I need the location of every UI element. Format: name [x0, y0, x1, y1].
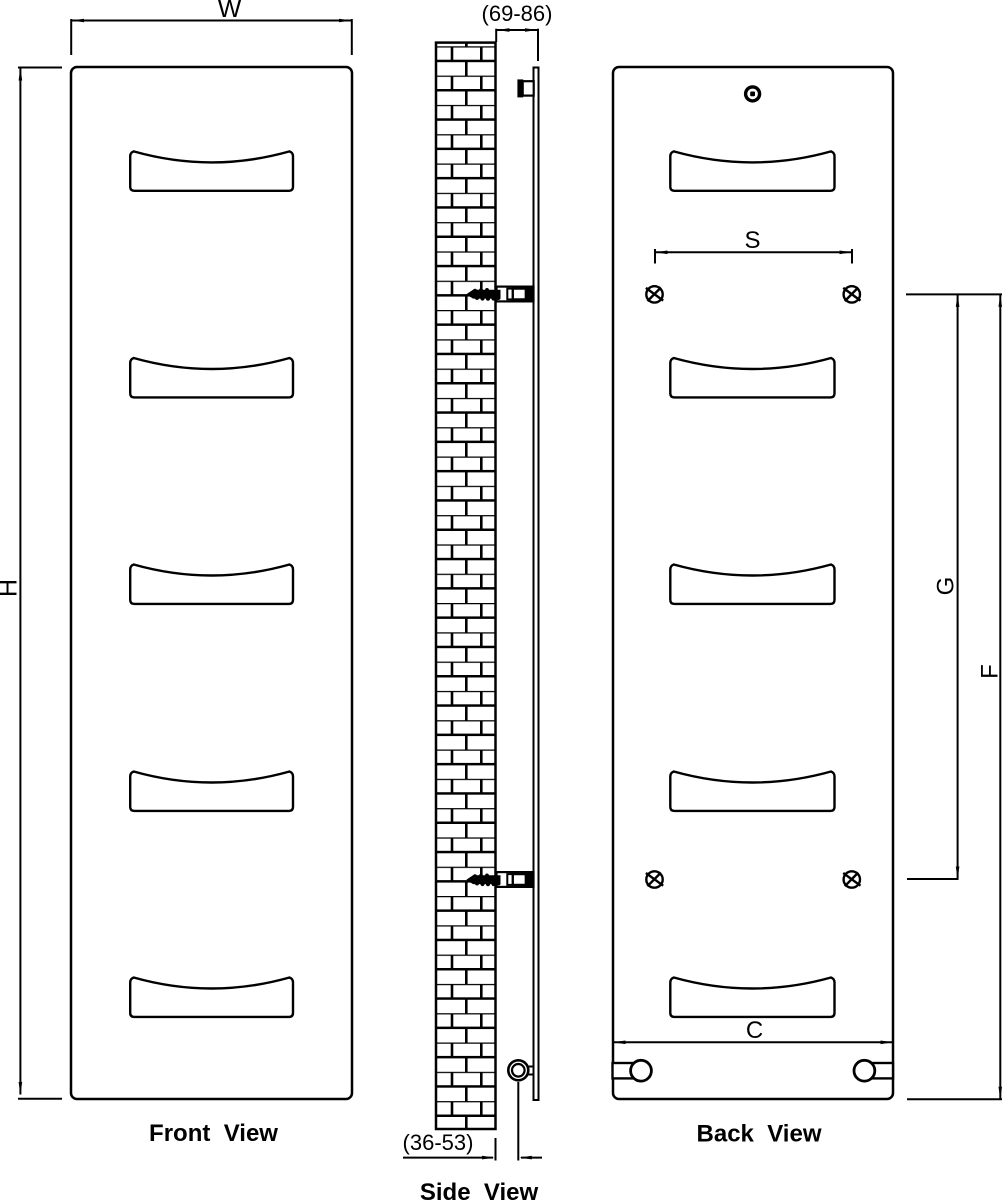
svg-text:Side View: Side View	[420, 1179, 539, 1200]
svg-text:Back View: Back View	[697, 1121, 822, 1148]
svg-text:S: S	[744, 227, 760, 254]
svg-text:F: F	[977, 664, 1002, 679]
svg-text:C: C	[746, 1017, 763, 1044]
svg-text:(36-53): (36-53)	[403, 1130, 474, 1155]
svg-text:H: H	[0, 579, 23, 597]
svg-text:G: G	[933, 577, 960, 596]
svg-text:Front View: Front View	[149, 1120, 278, 1147]
svg-text:(69-86): (69-86)	[482, 1, 553, 26]
